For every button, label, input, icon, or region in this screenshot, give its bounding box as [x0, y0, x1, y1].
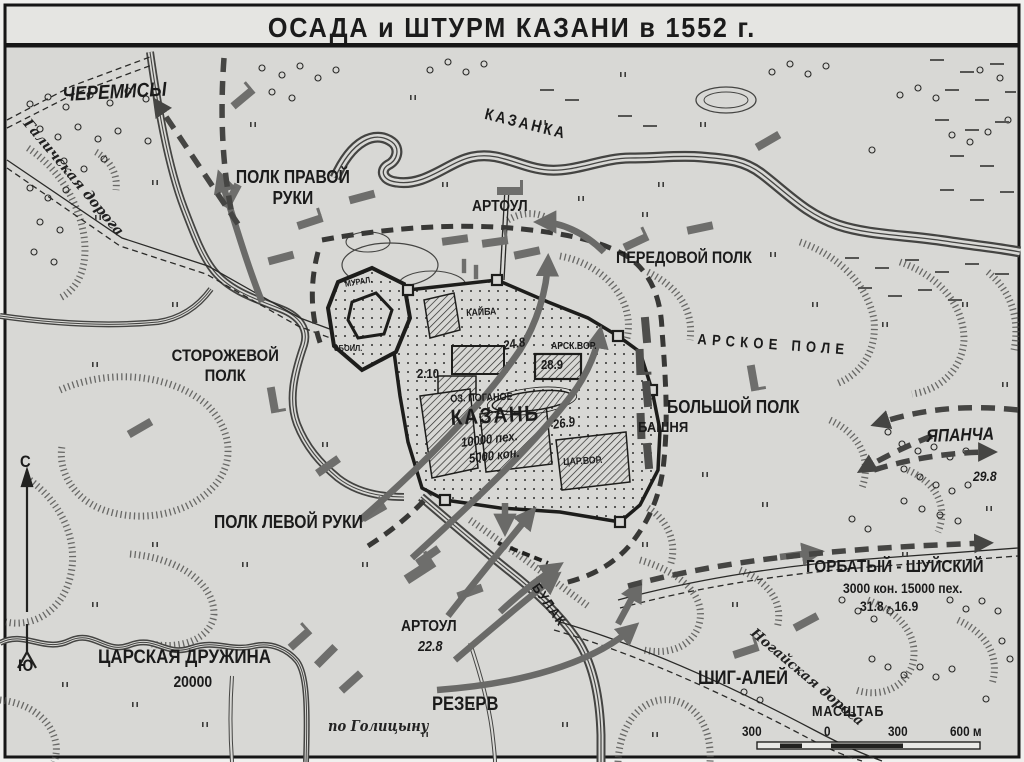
- scale-bar: [757, 742, 980, 749]
- city-tower-label: БАШНЯ: [638, 419, 688, 437]
- scale-tick-0: 0: [824, 724, 831, 740]
- compass-north-label: С: [20, 452, 31, 472]
- gate-label-kaybatskie: КАЙБА: [466, 306, 497, 319]
- source-credit: по Голицыну: [328, 718, 429, 736]
- artoul-south-date: 22.8: [418, 639, 443, 656]
- scale-title: МАСШТАБ: [812, 704, 884, 721]
- force-label-artoul-south: АРТОУЛ: [401, 618, 457, 637]
- city-lake-label: ОЗ. ПОГАНОЕ: [450, 391, 513, 406]
- force-label-peredovoy-polk: ПЕРЕДОВОЙ ПОЛК: [616, 249, 752, 268]
- scale-tick-300: 300: [888, 724, 908, 740]
- force-label-gorbaty-shuysky: ГОРБАТЫЙ - ШУЙСКИЙ: [806, 556, 984, 577]
- gorbaty-dates: 31.8 - 16.9: [860, 598, 918, 615]
- scale-tick-minus300: 300: [742, 724, 762, 740]
- force-label-shig-aley: ШИГ-АЛЕЙ: [698, 668, 788, 690]
- gate-label-tsarevy: ЦАР.ВОР.: [563, 455, 603, 469]
- force-label-artoul-north: АРТОУЛ: [472, 198, 528, 217]
- force-label-rezerv: РЕЗЕРВ: [432, 694, 498, 716]
- force-label-yapancha: ЯПАНЧА: [926, 424, 994, 448]
- yapancha-date: 29.8: [973, 468, 997, 485]
- force-label-polk-pravoy-ruki: ПОЛК ПРАВОЙ РУКИ: [232, 167, 354, 209]
- map-screenshot: ОСАДА и ШТУРМ КАЗАНИ в 1552 г. ЧЕРЕМИСЫ …: [0, 0, 1024, 762]
- assault-date-28-9: 28.9: [541, 357, 563, 372]
- gorbaty-strength: 3000 кон. 15000 пех.: [843, 580, 962, 597]
- assault-date-26-9: 26.9: [552, 414, 576, 432]
- compass-south-label: Ю: [18, 656, 33, 676]
- tsarskaya-strength: 20000: [158, 674, 228, 693]
- force-label-tsarskaya-druzhina: ЦАРСКАЯ ДРУЖИНА: [98, 646, 271, 669]
- force-label-polk-levoy-ruki: ПОЛК ЛЕВОЙ РУКИ: [214, 512, 363, 533]
- map-title: ОСАДА и ШТУРМ КАЗАНИ в 1552 г.: [51, 11, 973, 44]
- force-label-bolshoy-polk: БОЛЬШОЙ ПОЛК: [667, 397, 799, 418]
- assault-date-2-10: 2.10: [417, 366, 439, 381]
- scale-tick-600: 600 м: [950, 724, 982, 740]
- gate-label-zboylivye: ЗБОИЛ.: [334, 343, 362, 353]
- force-label-storozhevoy-polk: СТОРОЖЕВОЙ ПОЛК: [160, 346, 291, 386]
- gate-label-arskie: АРСК.ВОР.: [551, 341, 597, 353]
